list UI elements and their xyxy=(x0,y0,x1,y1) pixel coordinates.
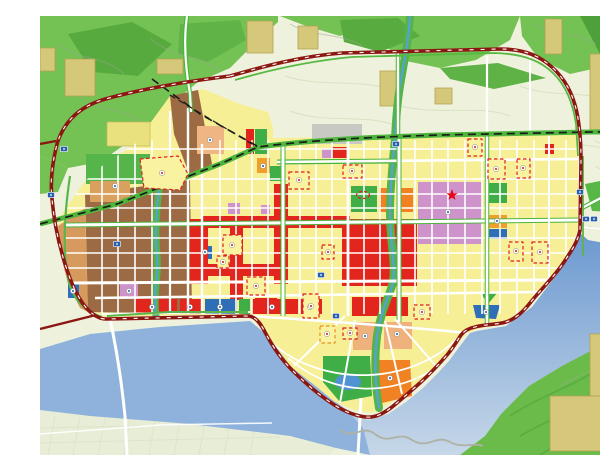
village-patch-hills xyxy=(550,396,600,451)
village-patch xyxy=(40,48,55,71)
village-patch xyxy=(298,26,318,49)
village-patch xyxy=(65,59,95,96)
village-patch-hills xyxy=(590,334,600,396)
village-patch xyxy=(435,88,452,104)
village-patch xyxy=(545,19,562,54)
zone-park-east xyxy=(488,183,507,203)
village-patch xyxy=(157,59,183,74)
village-patch xyxy=(590,54,600,134)
city-master-plan-map xyxy=(40,16,600,455)
village-patch xyxy=(247,21,273,53)
map-canvas xyxy=(40,16,600,455)
zone-purple-d xyxy=(465,215,480,234)
zone-village-yellow-nw xyxy=(107,122,150,146)
